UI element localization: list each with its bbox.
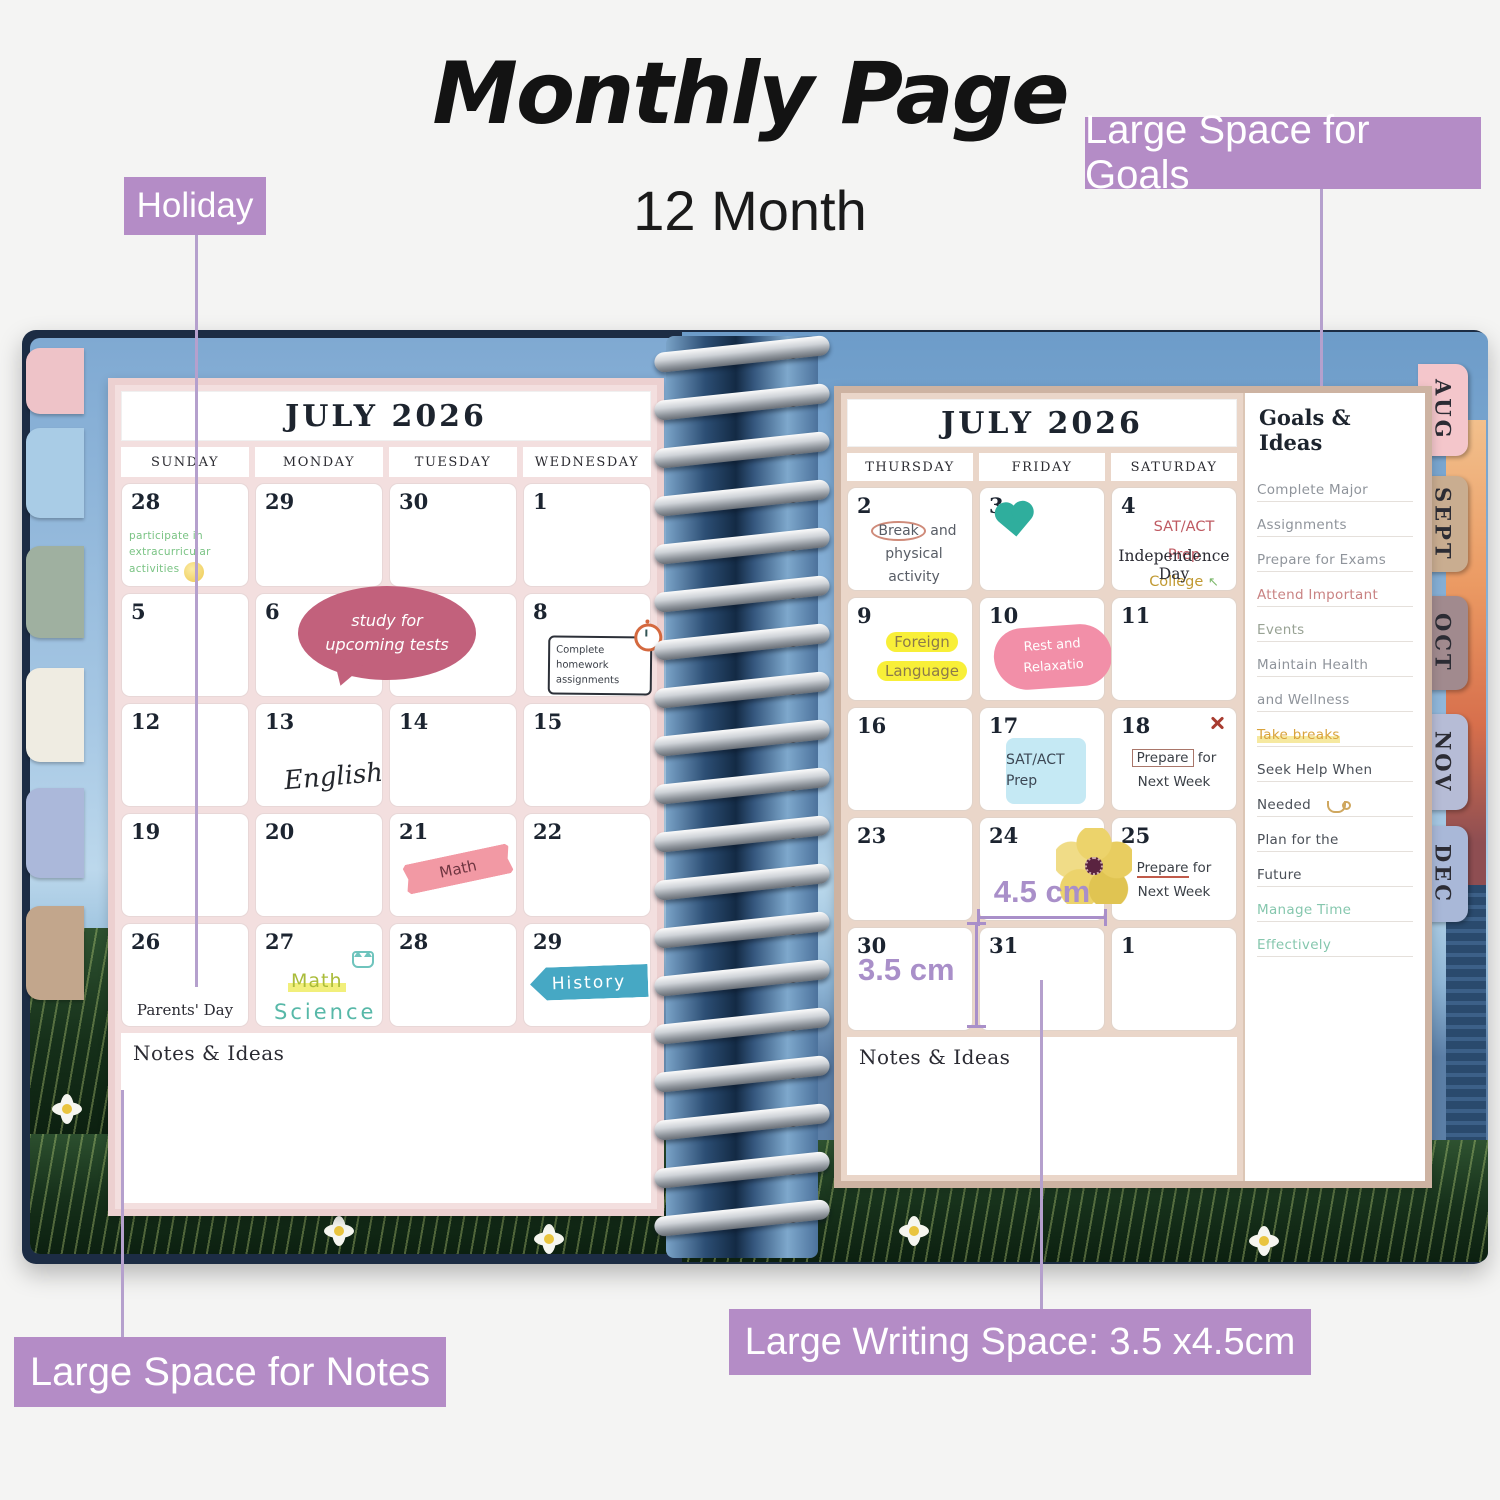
teacup-doodle-icon xyxy=(1327,801,1346,813)
date-number: 10 xyxy=(989,603,1018,628)
calendar-cell: 8 Complete homework assignments xyxy=(523,593,651,697)
date-number: 9 xyxy=(857,603,872,628)
left-tab xyxy=(26,546,84,638)
date-number: 24 xyxy=(989,823,1018,848)
date-number: 1 xyxy=(533,489,548,514)
goal-item: Effectively xyxy=(1257,922,1413,957)
calendar-cell: 5 xyxy=(121,593,249,697)
goal-text: Needed xyxy=(1257,797,1311,813)
measurement-bracket xyxy=(977,916,1107,919)
calendar-grid: 28 participate in extracurricular activi… xyxy=(121,483,651,1027)
product-image: Monthly Page 12 Month AUG SEPT OCT NOV D… xyxy=(0,0,1500,1500)
month-title: JULY 2026 xyxy=(847,399,1237,447)
calendar-cell: 1 xyxy=(523,483,651,587)
date-number: 30 xyxy=(399,489,428,514)
left-tab xyxy=(26,428,84,518)
note-text: Next Week xyxy=(1138,884,1211,900)
note-text: Next Week xyxy=(1138,774,1211,790)
calendar-cell: 17 SAT/ACT Prep xyxy=(979,707,1105,811)
arrow-tag-sticker: History xyxy=(529,964,648,1001)
goal-item: Take breaks xyxy=(1257,712,1413,747)
date-number: 21 xyxy=(399,819,428,844)
weekday-header: SUNDAY xyxy=(121,447,249,477)
weekday-header: TUESDAY xyxy=(389,447,517,477)
goal-item: Needed xyxy=(1257,782,1413,817)
lightbulb-icon xyxy=(184,562,204,582)
goal-text: and Wellness xyxy=(1257,692,1350,708)
blob-sticker: Rest and Relaxatio xyxy=(992,622,1114,692)
weekday-header: SATURDAY xyxy=(1111,453,1237,481)
goal-text: Attend Important xyxy=(1257,587,1378,603)
washi-tape-sticker: Math xyxy=(402,843,514,895)
circled-word: Break xyxy=(871,521,925,541)
callout-line xyxy=(1040,980,1043,1310)
left-calendar-page: JULY 2026 SUNDAY MONDAY TUESDAY WEDNESDA… xyxy=(108,378,664,1216)
calendar-cell: 30 xyxy=(389,483,517,587)
calendar-cell: 20 xyxy=(255,813,383,917)
handwritten-note: Math xyxy=(288,970,346,992)
goal-item: Complete Major xyxy=(1257,467,1413,502)
weekday-header: THURSDAY xyxy=(847,453,973,481)
callout-line xyxy=(195,235,198,987)
daisy-icon xyxy=(905,1222,923,1240)
speech-bubble-sticker: study for upcoming tests xyxy=(298,586,476,680)
calendar-cell: 2 Break and physical activity xyxy=(847,487,973,591)
goal-text: Manage Time xyxy=(1257,902,1351,918)
calendar-cell: 4 SAT/ACT Prep College ↖ or Research ↓ I… xyxy=(1111,487,1237,591)
weekday-header: WEDNESDAY xyxy=(523,447,651,477)
boxed-word: Prepare xyxy=(1132,749,1194,767)
highlighted-note: Foreign Language xyxy=(864,628,980,685)
date-number: 18 xyxy=(1121,713,1150,738)
calendar-cell: 19 xyxy=(121,813,249,917)
calendar-cell: 23 xyxy=(847,817,973,921)
date-number: 16 xyxy=(857,713,886,738)
holiday-label: Independence Day xyxy=(1112,547,1236,583)
left-tab xyxy=(26,348,84,414)
sticky-note: SAT/ACT Prep xyxy=(1006,738,1086,804)
measurement-label: 3.5 cm xyxy=(858,952,955,988)
date-number: 22 xyxy=(533,819,562,844)
underlined-word: Prepare xyxy=(1137,860,1189,878)
calendar-cell: 29 History xyxy=(523,923,651,1027)
goal-item: and Wellness xyxy=(1257,677,1413,712)
goals-header: Goals & Ideas xyxy=(1259,405,1413,455)
date-number: 29 xyxy=(265,489,294,514)
date-number: 17 xyxy=(989,713,1018,738)
notes-label: Notes & Ideas xyxy=(133,1041,284,1065)
weekday-header-row: SUNDAY MONDAY TUESDAY WEDNESDAY xyxy=(121,447,651,477)
goal-item: Future xyxy=(1257,852,1413,887)
calendar-cell: 22 xyxy=(523,813,651,917)
left-tab xyxy=(26,788,84,878)
daisy-icon xyxy=(58,1100,76,1118)
goal-text: Take breaks xyxy=(1257,727,1340,743)
weekday-header: FRIDAY xyxy=(979,453,1105,481)
handwritten-note: participate in extracurricular activitie… xyxy=(129,528,233,577)
calendar-cell: 27 Math Science xyxy=(255,923,383,1027)
date-number: 1 xyxy=(1121,933,1136,958)
calendar-cell: 6 study for upcoming tests xyxy=(255,593,383,697)
date-number: 4 xyxy=(1121,493,1136,518)
handwritten-note: Prepare for Next Week xyxy=(1116,856,1232,905)
calendar-cell: 10 Rest and Relaxatio xyxy=(979,597,1105,701)
callout-holiday: Holiday xyxy=(124,177,266,235)
weekday-header-row: THURSDAY FRIDAY SATURDAY xyxy=(847,453,1237,481)
goal-item: Events xyxy=(1257,607,1413,642)
handwritten-note: Science xyxy=(274,1000,376,1024)
callout-writing-space: Large Writing Space: 3.5 x4.5cm xyxy=(729,1309,1311,1375)
calendar-cell: 14 xyxy=(389,703,517,807)
holiday-label: Parents' Day xyxy=(122,1001,248,1019)
calendar-cell: 9 Foreign Language xyxy=(847,597,973,701)
date-number: 13 xyxy=(265,709,294,734)
date-number: 23 xyxy=(857,823,886,848)
calendar-cell: 16 xyxy=(847,707,973,811)
calendar-cell: 11 xyxy=(1111,597,1237,701)
weekday-header: MONDAY xyxy=(255,447,383,477)
note-text: Complete homework assignments xyxy=(556,645,619,687)
goal-item: Assignments xyxy=(1257,502,1413,537)
goal-text: Effectively xyxy=(1257,937,1331,953)
goals-panel: Goals & Ideas Complete Major Assignments… xyxy=(1243,393,1425,1181)
cat-doodle-icon xyxy=(352,951,374,968)
calendar-cell: 3 xyxy=(979,487,1105,591)
date-number: 6 xyxy=(265,599,280,624)
note-text: for xyxy=(1193,860,1212,876)
date-number: 20 xyxy=(265,819,294,844)
daisy-icon xyxy=(540,1230,558,1248)
date-number: 5 xyxy=(131,599,146,624)
callout-notes-space: Large Space for Notes xyxy=(14,1337,446,1407)
month-title: JULY 2026 xyxy=(121,391,651,441)
date-number: 8 xyxy=(533,599,548,624)
goal-item: Seek Help When xyxy=(1257,747,1413,782)
calendar-cell: 28 xyxy=(389,923,517,1027)
goal-text: Prepare for Exams xyxy=(1257,552,1386,568)
date-number: 26 xyxy=(131,929,160,954)
callout-line xyxy=(121,1090,124,1337)
right-calendar-page: JULY 2026 THURSDAY FRIDAY SATURDAY 2 Bre… xyxy=(834,386,1432,1188)
left-tab xyxy=(26,668,84,762)
callout-goals-space: Large Space for Goals xyxy=(1085,117,1481,189)
date-number: 15 xyxy=(533,709,562,734)
date-number: 19 xyxy=(131,819,160,844)
calendar-cell: 12 xyxy=(121,703,249,807)
calendar-cell: 26 Parents' Day xyxy=(121,923,249,1027)
calendar-cell: 21 Math xyxy=(389,813,517,917)
goal-item: Plan for the xyxy=(1257,817,1413,852)
callout-line xyxy=(1320,189,1323,386)
calendar-cell: 1 xyxy=(1111,927,1237,1031)
goal-text: Complete Major xyxy=(1257,482,1368,498)
calendar-grid: 2 Break and physical activity 3 4 SAT/AC… xyxy=(847,487,1237,1031)
date-number: 14 xyxy=(399,709,428,734)
handwritten-note: Break and physical activity xyxy=(862,520,966,589)
note-sticker: Complete homework assignments xyxy=(548,635,653,695)
date-number: 29 xyxy=(533,929,562,954)
daisy-icon xyxy=(330,1222,348,1240)
date-number: 28 xyxy=(131,489,160,514)
notes-label: Notes & Ideas xyxy=(859,1045,1010,1069)
goal-text: Maintain Health xyxy=(1257,657,1368,673)
daisy-icon xyxy=(1255,1232,1273,1250)
handwritten-note: Prepare for Next Week xyxy=(1116,746,1232,795)
handwritten-note: English xyxy=(283,758,384,797)
goal-text: Future xyxy=(1257,867,1302,883)
goal-text: Seek Help When xyxy=(1257,762,1372,778)
goal-item: Maintain Health xyxy=(1257,642,1413,677)
date-number: 28 xyxy=(399,929,428,954)
date-number: 2 xyxy=(857,493,872,518)
date-number: 12 xyxy=(131,709,160,734)
width-measurement: 4.5 cm xyxy=(977,874,1107,919)
goal-item: Prepare for Exams xyxy=(1257,537,1413,572)
note-text: Foreign Language xyxy=(877,632,967,681)
calendar-cell: 13 English xyxy=(255,703,383,807)
calendar-cell: 18 Prepare for Next Week xyxy=(1111,707,1237,811)
date-number: 11 xyxy=(1121,603,1150,628)
notes-section: Notes & Ideas xyxy=(121,1033,651,1203)
calendar-cell: 29 xyxy=(255,483,383,587)
calendar-cell: 15 xyxy=(523,703,651,807)
spiral-binding xyxy=(666,336,818,1258)
height-measurement-bracket xyxy=(975,922,978,1028)
goal-text: Plan for the xyxy=(1257,832,1339,848)
date-number: 31 xyxy=(989,933,1018,958)
goal-text: Assignments xyxy=(1257,517,1347,533)
goal-text: Events xyxy=(1257,622,1305,638)
date-number: 27 xyxy=(265,929,294,954)
red-doodle-icon xyxy=(1210,716,1224,730)
left-tab xyxy=(26,906,84,1000)
goal-item: Attend Important xyxy=(1257,572,1413,607)
calendar-cell: 28 participate in extracurricular activi… xyxy=(121,483,249,587)
heart-sticker-icon xyxy=(1000,506,1031,537)
measurement-label: 4.5 cm xyxy=(994,874,1091,909)
goal-item: Manage Time xyxy=(1257,887,1413,922)
note-text: for xyxy=(1198,750,1217,766)
